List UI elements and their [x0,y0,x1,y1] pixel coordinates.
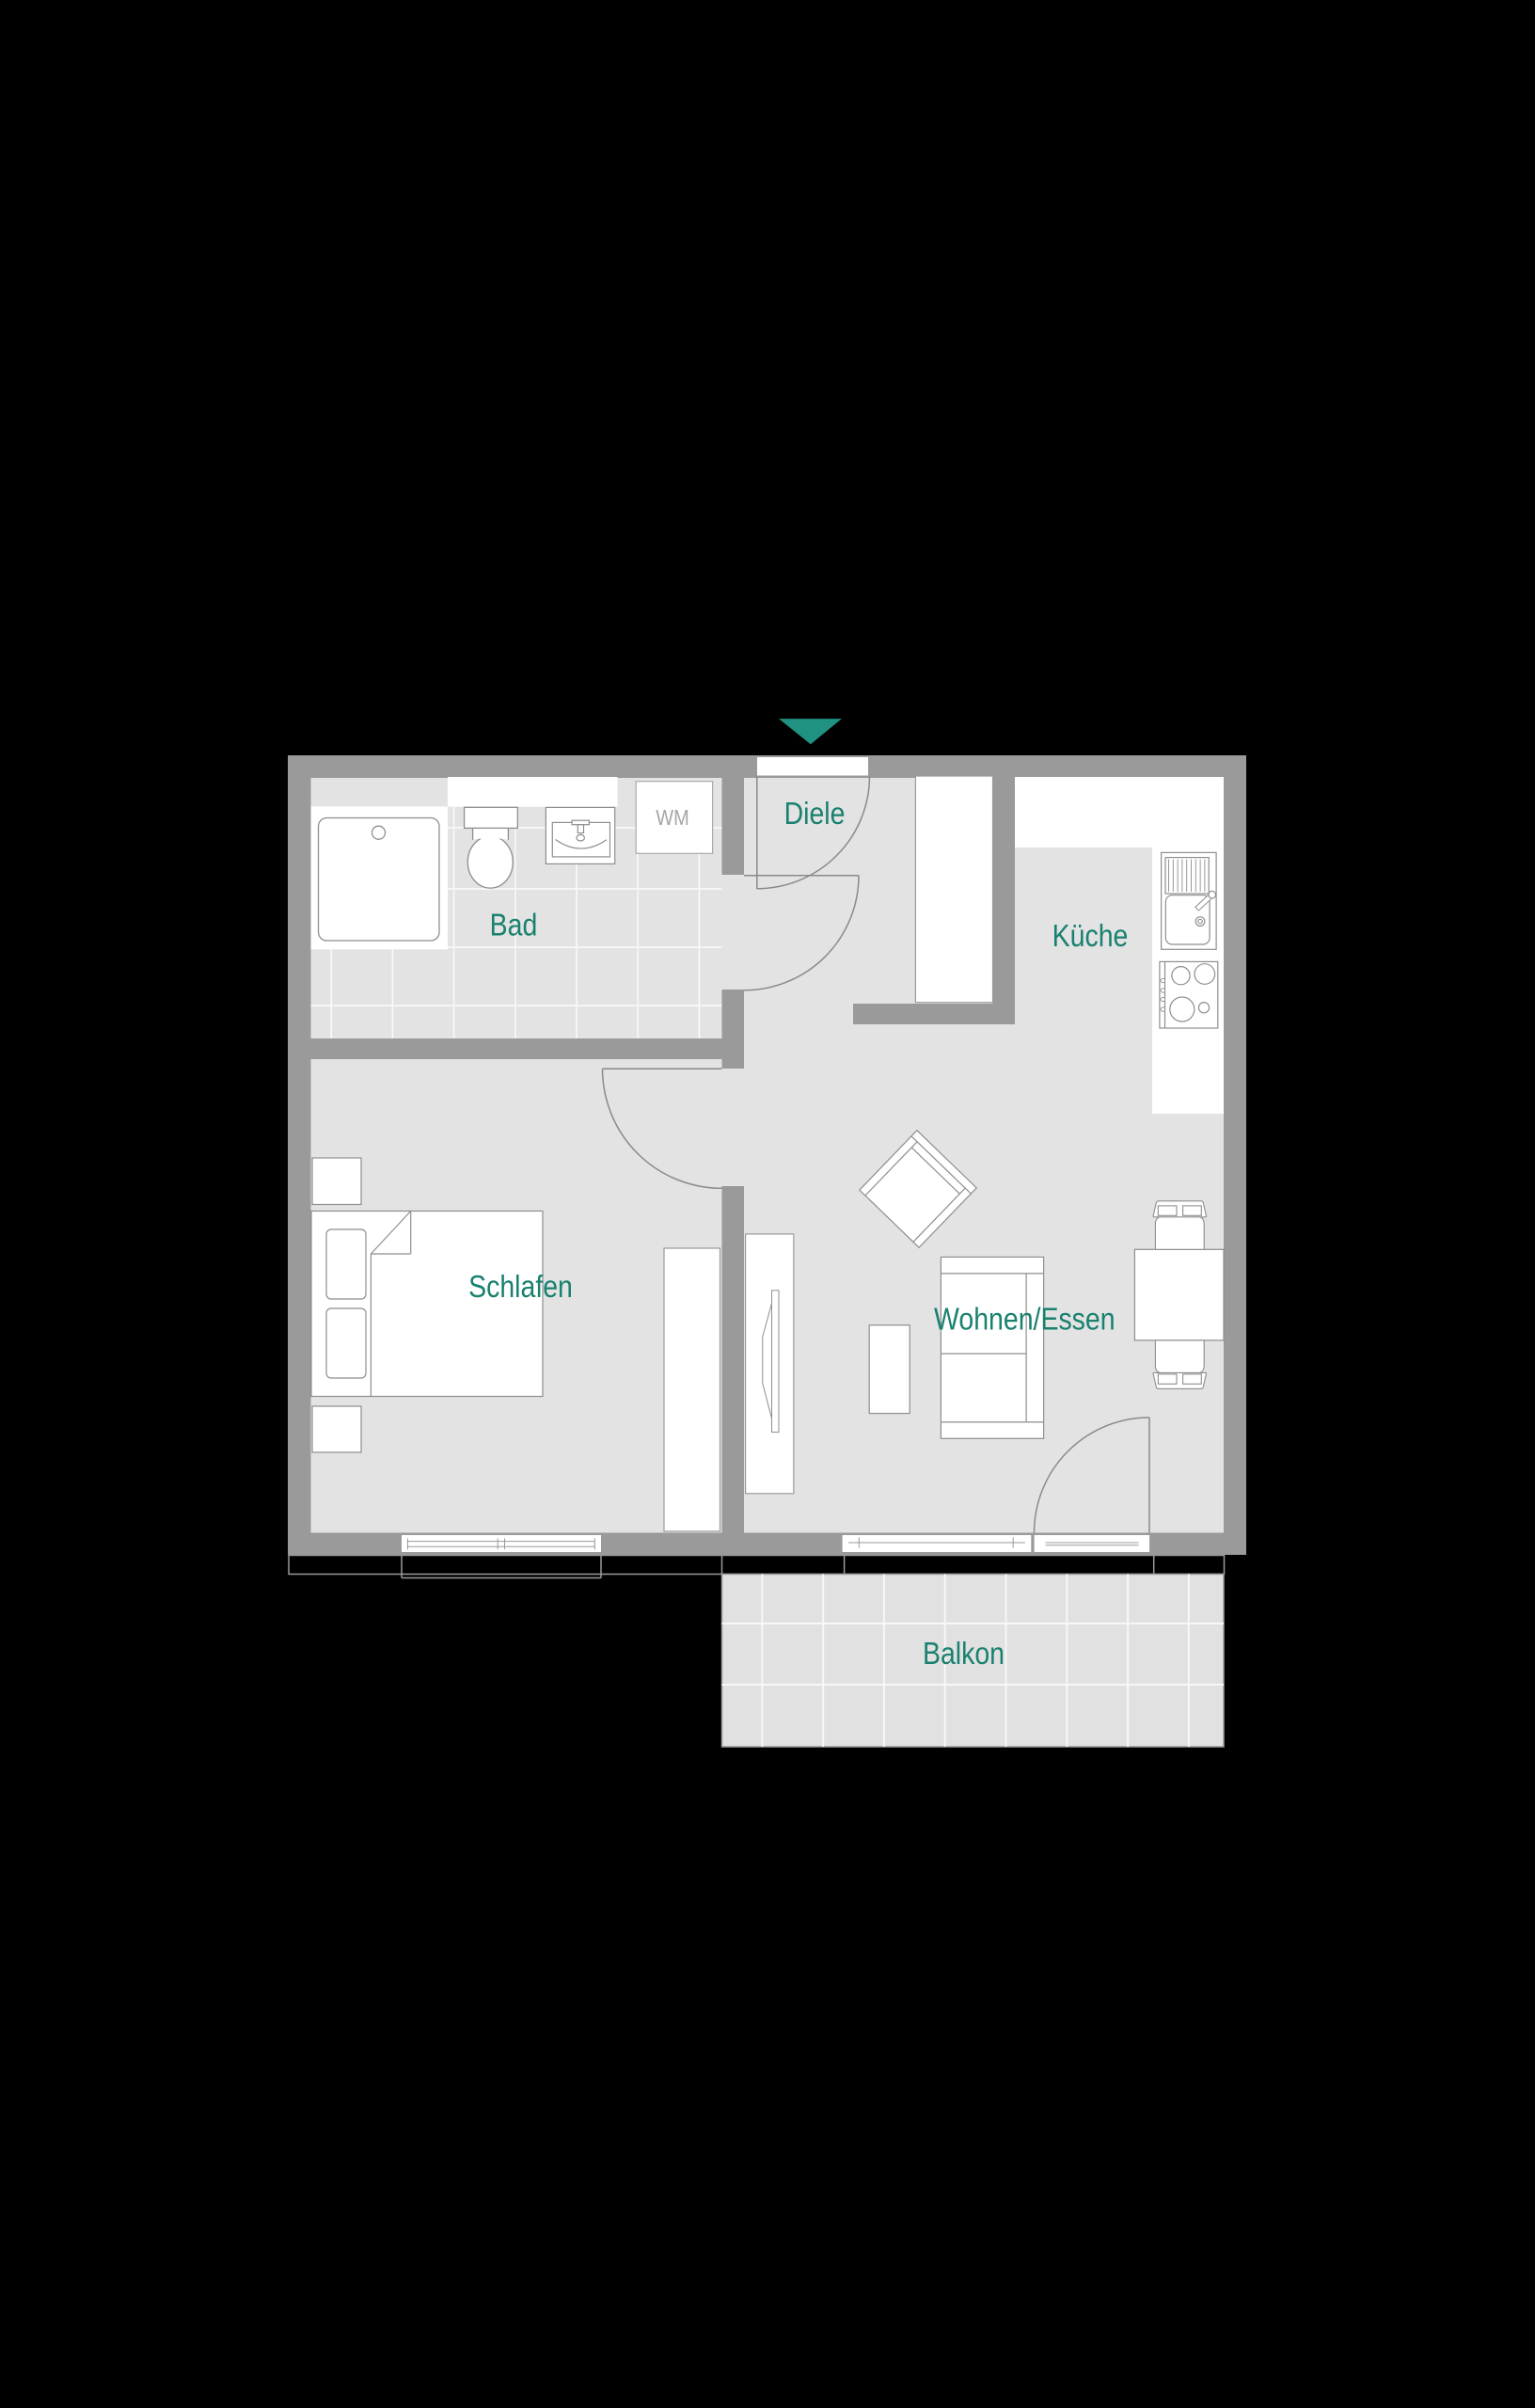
svg-text:Küche: Küche [1052,918,1129,954]
svg-text:Bad: Bad [490,908,538,943]
svg-text:Diele: Diele [784,796,846,832]
svg-text:Balkon: Balkon [923,1636,1005,1671]
svg-text:Schlafen: Schlafen [468,1269,573,1305]
svg-text:Wohnen/Essen: Wohnen/Essen [934,1301,1116,1337]
svg-text:WM: WM [656,804,688,830]
